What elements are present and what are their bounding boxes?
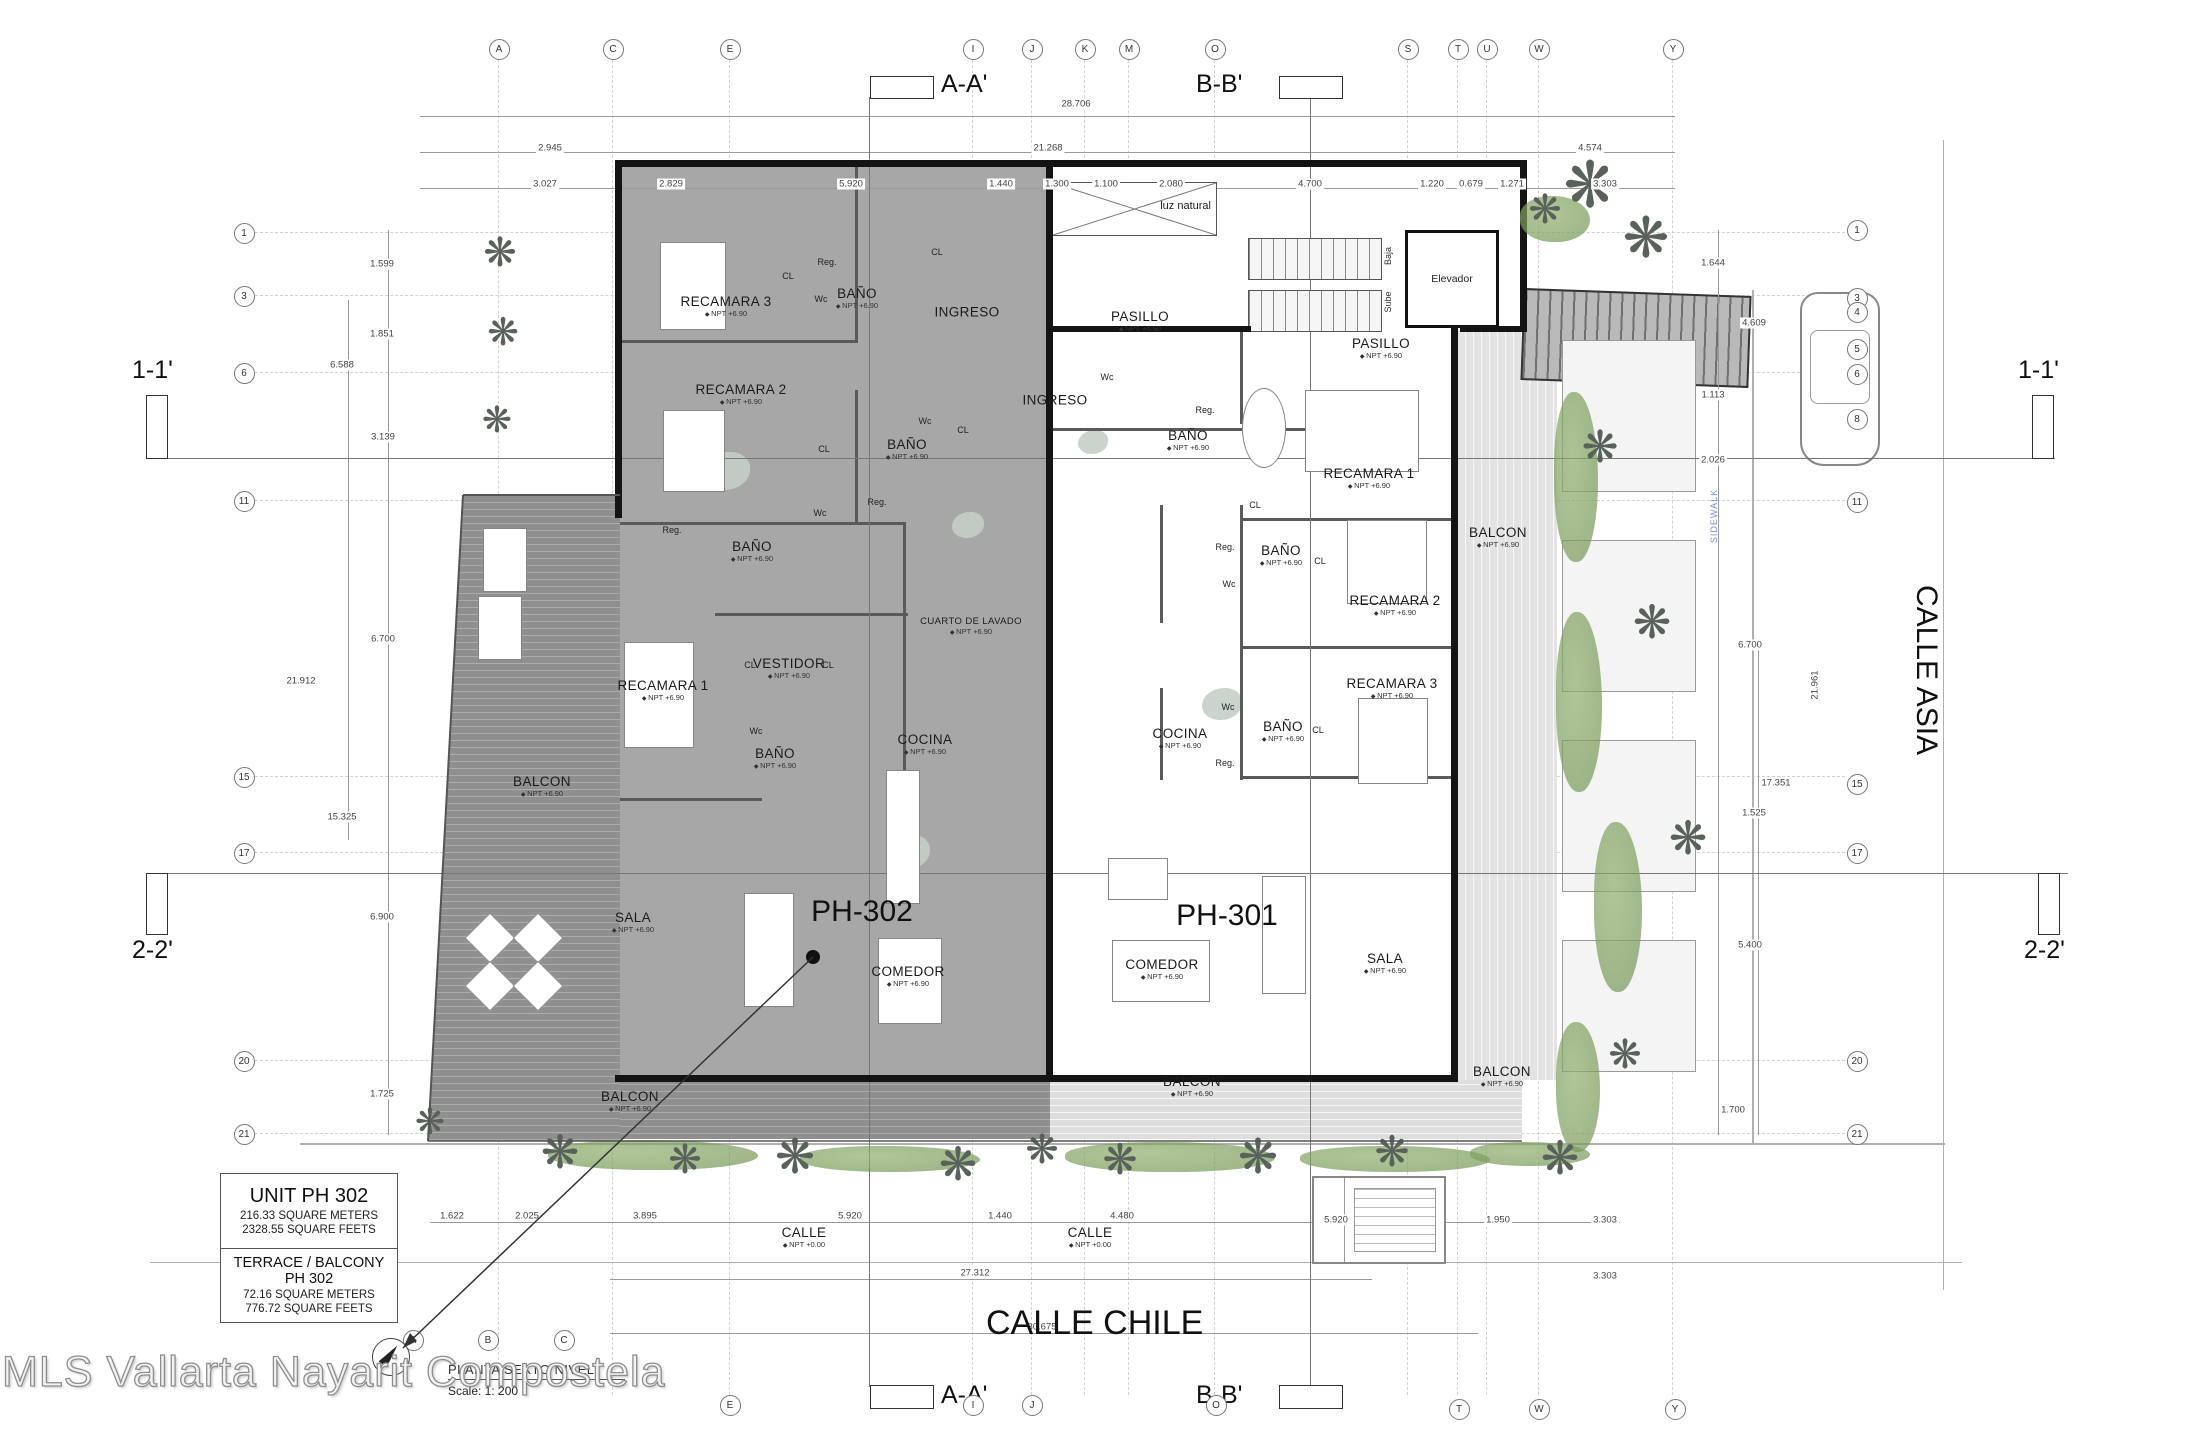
room-level-label: NPT +6.90 [1469,540,1527,549]
room-name: SALA [612,910,654,925]
dimension-line [1758,640,1759,1135]
furniture-icon [483,528,527,592]
fixture-label: Reg. [1215,542,1234,552]
room-name: SALA [1364,951,1406,966]
room-name: BAÑO [1262,719,1304,734]
dimension-label: 1.440 [986,1211,1014,1222]
room-label: CALLENPT +0.00 [1068,1225,1113,1249]
dimension-label: 21.961 [1810,668,1821,701]
unit-label-ph301: PH-301 [1176,899,1278,933]
stairs-icon [1248,238,1382,280]
room-name: BAÑO [836,286,878,301]
street-curb-line [1752,290,1754,1145]
room-level-label: NPT +6.90 [1153,741,1208,750]
furniture-icon [478,596,522,660]
fixture-label: Wc [1222,702,1235,712]
grid-bubble-6: 6 [234,363,255,384]
room-name: COCINA [898,732,953,747]
dimension-label: 5.400 [1736,940,1764,951]
palm-tree-icon: ❋ [775,1134,815,1182]
vine-planting [548,1140,758,1170]
furniture-icon [744,893,794,1007]
grid-bubble-T: T [1449,1399,1470,1420]
furniture-icon [1347,520,1427,604]
dimension-label: 1.644 [1699,258,1727,269]
room-level-label: NPT +6.90 [1163,1089,1221,1098]
room-label: BALCONNPT +6.90 [601,1089,659,1113]
watermark: MLS Vallarta Nayarit Compostela [2,1348,666,1397]
fixture-label: CL [1249,500,1261,510]
grid-bubble-15: 15 [234,767,255,788]
dimension-label: 6.588 [328,360,356,371]
dimension-label: 2.026 [1699,455,1727,466]
room-name: PASILLO [1352,336,1410,351]
grid-bubble-J: J [1022,1395,1043,1416]
grid-bubble-17: 17 [1847,843,1868,864]
palm-tree-icon: ❋ [1541,1135,1580,1181]
skylight: luz natural [1052,182,1217,236]
room-name: COMEDOR [1125,957,1198,972]
room-label: COCINANPT +6.90 [898,732,953,756]
section-aa-bottom-flag [870,1385,934,1409]
dimension-label: 3.139 [369,432,397,443]
room-name: BAÑO [731,539,773,554]
fixture-label: CL [744,660,756,670]
terrace-title: TERRACE / BALCONY PH 302 [223,1255,395,1287]
dimension-label: 6.700 [369,634,397,645]
unit-area-sqm: 216.33 SQUARE METERS [223,1210,395,1222]
grid-bubble-W: W [1529,39,1550,60]
grid-bubble-8: 8 [1847,409,1868,430]
grid-bubble-Y: Y [1665,1399,1686,1420]
dimension-label: 21.912 [284,676,317,687]
palm-tree-icon: ❋ [482,402,512,438]
section-11-left-label: 1-1' [132,356,173,385]
partition-wall [855,390,858,522]
dimension-label: 1.100 [1092,179,1120,190]
room-level-label: NPT +6.90 [1349,608,1440,617]
stairs-up-label: Sube [1383,291,1393,312]
dimension-label: 5.920 [836,1211,864,1222]
elevator: Elevador [1405,230,1499,328]
grid-bubble-S: S [1398,39,1419,60]
grid-bubble-A: A [489,39,510,60]
room-label: RECAMARA 1NPT +6.90 [617,678,708,702]
room-name: INGRESO [934,305,999,320]
grid-bubble-T: T [1448,39,1469,60]
fixture-label: CL [822,660,834,670]
room-name: RECAMARA 2 [1349,593,1440,608]
dimension-label: 2.945 [536,143,564,154]
dimension-label: 5.920 [1322,1215,1350,1226]
room-name: RECAMARA 2 [695,382,786,397]
dimension-label: 1.851 [368,329,396,340]
palm-tree-icon: ❋ [1102,1139,1137,1181]
room-label: BAÑONPT +6.90 [886,437,928,461]
room-level-label: NPT +6.90 [1260,558,1302,567]
wall [1451,326,1458,1082]
room-level-label: NPT +0.00 [782,1240,827,1249]
grid-bubble-Y: Y [1663,39,1684,60]
furniture-icon [1358,698,1428,784]
room-label: BAÑONPT +6.90 [836,286,878,310]
ph302-balcony-deck [620,1077,1050,1139]
dimension-line [610,1279,1372,1280]
room-level-label: NPT +6.90 [1323,481,1414,490]
palm-tree-icon: ❋ [483,233,517,273]
grid-bubble-W: W [1529,1399,1550,1420]
wall [615,160,1527,167]
furniture-icon [1262,876,1306,994]
dimension-label: 1.300 [1043,179,1071,190]
partition-wall [855,167,858,342]
room-label: BALCONNPT +6.90 [1473,1064,1531,1088]
dimension-label: 21.268 [1031,143,1064,154]
fixture-label: CL [957,425,969,435]
room-name: BAÑO [886,437,928,452]
room-name: CUARTO DE LAVADO [920,616,1022,627]
palm-tree-icon: ❋ [541,1129,580,1175]
room-level-label: NPT +6.90 [1352,351,1410,360]
fixture-label: Wc [1223,579,1236,589]
ph301-balcony-deck [1050,1077,1522,1139]
floor-plan-canvas: A-A' B-B' A-A' B-B' 1-1' 1-1' 2-2' 2-2' … [0,0,2212,1431]
grid-bubble-U: U [1477,39,1498,60]
stairs-icon [1248,290,1382,332]
room-level-label: NPT +6.90 [612,925,654,934]
fixture-label: Reg. [1195,405,1214,415]
grid-bubble-4: 4 [1847,302,1868,323]
room-label: VESTIDORNPT +6.90 [753,656,825,680]
room-level-label: NPT +6.90 [513,789,571,798]
partition-wall [620,798,762,801]
dimension-label: 2.025 [513,1211,541,1222]
room-name: CALLE [1068,1225,1113,1240]
unit-info-lower: TERRACE / BALCONY PH 302 72.16 SQUARE ME… [221,1249,397,1323]
room-level-label: NPT +6.90 [1364,966,1406,975]
room-name: PASILLO [1111,309,1169,324]
room-label: RECAMARA 2NPT +6.90 [1349,593,1440,617]
dimension-label: 1.220 [1418,179,1446,190]
grid-bubble-M: M [1119,39,1140,60]
room-name: BAÑO [1167,428,1209,443]
section-22-left-flag [146,873,168,935]
palm-tree-icon: ❋ [1582,426,1619,470]
partition-wall [1160,505,1163,623]
terrace-area-sqft: 776.72 SQUARE FEETS [223,1303,395,1315]
room-label: BALCONNPT +6.90 [1163,1074,1221,1098]
fixture-label: Reg. [817,257,836,267]
unit-label-ph302: PH-302 [811,895,913,929]
dimension-label: 1.525 [1740,808,1768,819]
room-level-label: NPT +6.90 [1473,1079,1531,1088]
dimension-line [1718,230,1719,1135]
dimension-label: 1.622 [438,1211,466,1222]
room-level-label: NPT +6.90 [836,301,878,310]
grid-bubble-E: E [720,39,741,60]
room-level-label: NPT +6.90 [601,1104,659,1113]
dimension-label: 2.829 [657,179,685,190]
room-label: RECAMARA 3NPT +6.90 [680,294,771,318]
room-label: COMEDORNPT +6.90 [871,964,944,988]
dimension-label: 1.725 [368,1089,396,1100]
room-label: BAÑONPT +6.90 [754,746,796,770]
dimension-label: 3.303 [1591,1271,1619,1282]
dimension-label: 1.700 [1719,1105,1747,1116]
room-level-label: NPT +6.90 [1125,972,1198,981]
elevator-label: Elevador [1431,273,1472,285]
section-cut-line [160,458,2055,459]
room-name: BAÑO [1260,543,1302,558]
room-level-label: NPT +0.00 [1068,1240,1113,1249]
fixture-label: CL [818,444,830,454]
fixture-label: Reg. [662,525,681,535]
wall [1460,326,1527,332]
grid-bubble-20: 20 [234,1051,255,1072]
unit-info-upper: UNIT PH 302 216.33 SQUARE METERS 2328.55… [221,1174,397,1249]
furniture-icon [663,410,725,492]
room-label: SALANPT +6.90 [1364,951,1406,975]
grid-bubble-21: 21 [234,1124,255,1145]
room-level-label: NPT +6.90 [695,397,786,406]
skylight-label: luz natural [1160,200,1211,212]
dimension-label: 3.303 [1591,1215,1619,1226]
room-level-label: NPT +6.90 [753,671,825,680]
fixture-label: CL [1312,725,1324,735]
unit-info-box: UNIT PH 302 216.33 SQUARE METERS 2328.55… [220,1173,398,1323]
sidewalk-label: SIDEWALK [1709,489,1719,543]
dimension-label: 3.027 [531,179,559,190]
room-level-label: NPT +6.90 [754,761,796,770]
street-curb-line [150,1262,1962,1263]
section-bb-top-flag [1279,76,1343,99]
room-label: INGRESO [1022,393,1087,408]
dimension-label: 3.303 [1591,179,1619,190]
section-11-right-flag [2032,395,2054,459]
dimension-label: 4.480 [1108,1211,1136,1222]
dimension-line [420,116,1675,117]
partition-wall [715,613,908,616]
grid-bubble-I: I [963,39,984,60]
grid-bubble-15: 15 [1847,774,1868,795]
room-label: BAÑONPT +6.90 [731,539,773,563]
room-level-label: NPT +6.90 [1262,734,1304,743]
palm-tree-icon: ❋ [1669,815,1708,861]
room-label: BAÑONPT +6.90 [1167,428,1209,452]
terrace-area-sqm: 72.16 SQUARE METERS [223,1289,395,1301]
grid-bubble-J: J [1022,39,1043,60]
room-label: PASILLONPT +6.90 [1352,336,1410,360]
furniture-icon [1305,390,1419,472]
room-label: RECAMARA 1NPT +6.90 [1323,466,1414,490]
dimension-label: 4.574 [1576,143,1604,154]
partition-wall [1240,332,1243,424]
palm-tree-icon: ❋ [939,1141,978,1187]
fixture-label: Wc [1101,372,1114,382]
fixture-label: CL [782,271,794,281]
room-level-label: NPT +6.90 [617,693,708,702]
dimension-label: 5.920 [837,179,865,190]
partition-wall [1243,646,1453,649]
grid-bubble-5: 5 [1847,339,1868,360]
room-level-label: NPT +6.90 [886,452,928,461]
room-name: BALCON [1163,1074,1221,1089]
room-level-label: NPT +6.90 [1111,324,1169,333]
room-label: COMEDORNPT +6.90 [1125,957,1198,981]
room-level-label: NPT +6.90 [1346,691,1437,700]
room-name: CALLE [782,1225,827,1240]
room-label: PASILLONPT +6.90 [1111,309,1169,333]
grid-bubble-11: 11 [234,491,255,512]
room-name: COCINA [1153,726,1208,741]
room-name: BALCON [601,1089,659,1104]
grid-bubble-21: 21 [1847,1124,1868,1145]
dimension-label: 15.325 [325,812,358,823]
car-icon [1800,292,1880,466]
room-label: BALCONNPT +6.90 [513,774,571,798]
grid-bubble-17: 17 [234,843,255,864]
room-label: CALLENPT +0.00 [782,1225,827,1249]
street-curb-line [1943,140,1944,1290]
room-name: BALCON [1473,1064,1531,1079]
grid-bubble-6: 6 [1847,364,1868,385]
section-11-right-label: 1-1' [2018,356,2059,385]
room-name: VESTIDOR [753,656,825,671]
dimension-label: 17.351 [1759,778,1792,789]
fixture-label: Wc [919,416,932,426]
dimension-line [388,230,389,1135]
fixture-label: Wc [814,508,827,518]
room-label: INGRESO [934,305,999,320]
street-name-calle-chile: CALLE CHILE [986,1304,1203,1343]
dimension-line [348,300,349,840]
room-level-label: NPT +6.90 [871,979,944,988]
grid-bubble-I: I [963,1395,984,1416]
room-label: BAÑONPT +6.90 [1262,719,1304,743]
room-label: CUARTO DE LAVADONPT +6.90 [920,616,1022,636]
grid-bubble-C: C [603,39,624,60]
section-bb-bottom-flag [1279,1385,1343,1409]
room-label: BALCONNPT +6.90 [1469,525,1527,549]
room-level-label: NPT +6.90 [898,747,953,756]
palm-tree-icon: ❋ [1528,190,1562,230]
room-label: RECAMARA 2NPT +6.90 [695,382,786,406]
room-name: BALCON [513,774,571,789]
dimension-label: 6.700 [1736,640,1764,651]
dimension-label: 1.599 [368,259,396,270]
grid-bubble-O: O [1205,39,1226,60]
fixture-label: CL [1314,556,1326,566]
grid-bubble-3: 3 [234,286,255,307]
dimension-label: 0.679 [1457,179,1485,190]
room-name: RECAMARA 1 [617,678,708,693]
section-aa-top-label: A-A' [941,70,987,99]
partition-wall [620,340,858,343]
dimension-label: 1.113 [1699,390,1726,401]
unit-title: UNIT PH 302 [223,1185,395,1208]
fixture-label: CL [931,247,943,257]
fixture-label: Wc [750,726,763,736]
section-11-left-flag [146,395,168,459]
dimension-label: 1.440 [987,179,1015,190]
room-name: INGRESO [1022,393,1087,408]
dimension-label: 4.700 [1296,179,1324,190]
bathtub-icon [1242,388,1286,468]
grid-line-vertical [1672,60,1673,1395]
palm-tree-icon: ❋ [1608,1035,1642,1075]
room-level-label: NPT +6.90 [731,554,773,563]
section-aa-top-flag [870,76,934,99]
room-label: SALANPT +6.90 [612,910,654,934]
furniture-icon [1108,858,1168,900]
grid-bubble-K: K [1075,39,1096,60]
room-name: BALCON [1469,525,1527,540]
room-level-label: NPT +6.90 [920,627,1022,636]
furniture-icon [886,770,920,904]
dimension-label: 6.900 [368,912,396,923]
ph301-side-balcony-deck [1455,330,1557,1080]
unit-area-sqft: 2328.55 SQUARE FEETS [223,1224,395,1236]
fixture-label: Reg. [867,497,886,507]
wall [1046,160,1053,1082]
room-name: RECAMARA 3 [1346,676,1437,691]
grid-bubble-1: 1 [234,223,255,244]
wall [615,1075,1458,1082]
grid-bubble-O: O [1206,1395,1227,1416]
palm-tree-icon: ❋ [1025,1130,1059,1170]
palm-tree-icon: ❋ [1238,1134,1278,1182]
dimension-label: 4.609 [1740,318,1768,329]
dimension-label: 28.706 [1059,99,1092,110]
room-level-label: NPT +6.90 [1167,443,1209,452]
grid-bubble-1: 1 [1847,220,1868,241]
palm-tree-icon: ❋ [487,314,519,352]
fixture-label: Reg. [1215,758,1234,768]
street-name-calle-asia: CALLE ASIA [1909,585,1943,755]
grid-bubble-20: 20 [1847,1051,1868,1072]
fixture-label: Wc [815,294,828,304]
dimension-label: 2.080 [1157,179,1185,190]
room-level-label: NPT +6.90 [680,309,771,318]
dimension-label: 1.271 [1498,179,1526,190]
palm-tree-icon: ❋ [415,1104,445,1140]
grid-bubble-E: E [720,1395,741,1416]
dimension-label: 27.312 [958,1268,991,1279]
palm-tree-icon: ❋ [1623,210,1670,266]
palm-tree-icon: ❋ [1633,599,1672,645]
palm-tree-icon: ❋ [1374,1131,1409,1173]
stairs-down-label: Baja [1383,247,1393,265]
room-name: COMEDOR [871,964,944,979]
room-name: RECAMARA 1 [1323,466,1414,481]
section-bb-top-label: B-B' [1196,70,1242,99]
palm-tree-icon: ❋ [668,1140,702,1180]
section-22-right-label: 2-2' [2024,936,2065,965]
room-name: BAÑO [754,746,796,761]
partition-wall [1240,505,1243,780]
dimension-label: 1.950 [1484,1215,1512,1226]
section-22-right-flag [2038,873,2060,935]
dimension-label: 3.895 [631,1211,659,1222]
room-label: BAÑONPT +6.90 [1260,543,1302,567]
grid-bubble-11: 11 [1847,492,1868,513]
wall [615,160,622,518]
room-name: RECAMARA 3 [680,294,771,309]
room-label: COCINANPT +6.90 [1153,726,1208,750]
room-label: RECAMARA 3NPT +6.90 [1346,676,1437,700]
section-22-left-label: 2-2' [132,936,173,965]
